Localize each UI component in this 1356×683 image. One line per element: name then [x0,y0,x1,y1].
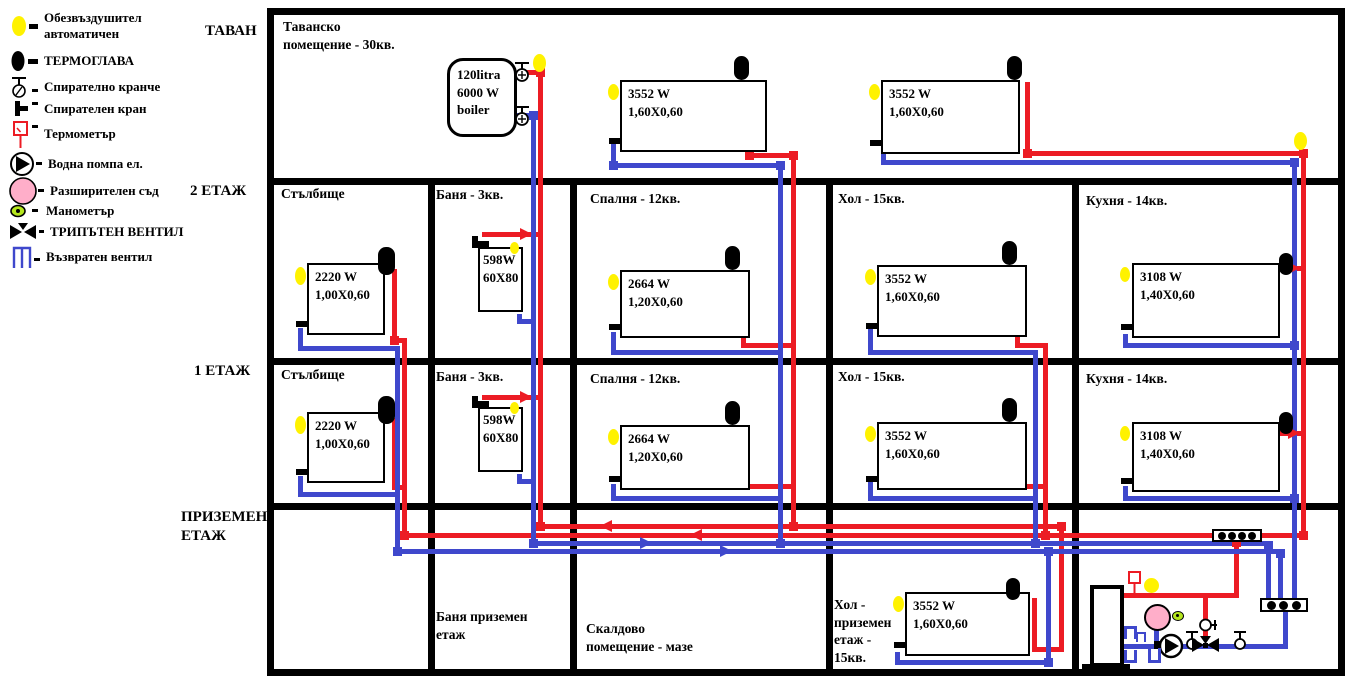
pipe-joint [609,161,618,170]
return-pipe [895,660,1051,665]
legend-item-thermo-head: ТЕРМОГЛАВА [8,48,134,74]
shutoff-valve-icon [296,321,309,327]
radiator-power: 2664 W [628,275,742,293]
return-pipe [1266,543,1271,600]
room-label-f1-kitchen: Кухня - 14кв. [1086,370,1167,388]
manifold-port [1279,601,1288,610]
manifold-port [1238,532,1246,540]
thermometer-icon [1126,570,1144,596]
return-pipe [298,346,400,351]
flow-arrow [720,545,732,557]
supply-riser-hall [1043,343,1048,538]
radiator-power: 3108 W [1140,268,1272,286]
floor-label-attic: ТАВАН [205,22,257,41]
wall-segment [428,178,435,676]
supply-pipe [1025,82,1030,154]
air-vent-icon [510,242,519,254]
shutoff-valve-icon [472,236,478,248]
pipe-joint [1044,658,1053,667]
pipe-joint [789,151,798,160]
return-pipe [1046,551,1051,665]
air-vent-icon [295,267,306,285]
shutoff-valve-icon [1121,324,1134,330]
return-pipe [1123,343,1297,348]
flow-arrow [640,537,652,549]
room-label-f2-bedroom: Спалня - 12кв. [590,190,680,208]
radiator-f1-stair: 2220 W1,00X0,60 [307,412,385,483]
return-pipe [611,496,783,501]
pipe-joint [789,522,798,531]
legend-item-shutoff-valve: Спирателен кран [8,98,146,120]
radiator-size: 1,00X0,60 [315,286,377,304]
shutoff-valve-icon [609,476,622,482]
water-pump-icon [8,150,42,178]
shutoff-valve-icon [472,396,478,408]
wall-segment [1072,178,1079,676]
supply-manifold [1212,529,1262,542]
radiator-power: 3552 W [913,597,1022,615]
pipe-joint [400,531,409,540]
room-label-attic: Таванско помещение - 30кв. [283,18,395,53]
legend-item-three-way-valve: ТРИПЪТЕН ВЕНТИЛ [8,222,183,242]
shutoff-valve-icon [609,138,622,144]
return-pipe [881,160,1297,165]
radiator-f2-kitchen: 3108 W1,40X0,60 [1132,263,1280,338]
legend-label: Термометър [44,126,116,142]
legend-label: Обезвъздушител автоматичен [44,10,142,41]
return-pipe [517,479,536,484]
radiator-size: 1,60X0,60 [885,288,1019,306]
room-label-f2-hall: Хол - 15кв. [838,190,905,208]
return-pipe [1123,496,1297,501]
supply-riser-stair [402,338,407,538]
return-pipe [1278,551,1283,600]
shutoff-tap-icon [1194,616,1218,634]
legend-label: Възвратен вентил [46,249,152,265]
radiator-attic-1: 3552 W1,60X0,60 [620,80,767,152]
shutoff-valve-icon [866,323,879,329]
pipe-joint [393,547,402,556]
manifold-port [1228,532,1236,540]
legend-label: ТРИПЪТЕН ВЕНТИЛ [50,224,183,240]
supply-pipe [1025,151,1306,156]
supply-pipe [1032,598,1037,650]
thermo-head-icon [725,401,740,425]
legend-item-water-pump: Водна помпа ел. [8,150,143,178]
radiator-size: 1,60X0,60 [628,103,759,121]
air-vent-icon [295,416,306,434]
air-vent-icon [608,274,619,290]
air-vent-icon [893,596,904,612]
pipe-joint [1264,541,1273,550]
air-vent-icon [865,426,876,442]
pipe-joint [1299,149,1308,158]
air-vent-icon [1120,267,1130,282]
air-vent-icon [1144,578,1159,593]
legend-item-manometer: Манометър [8,202,114,220]
return-pipe [517,319,536,324]
three-way-valve-icon [1191,636,1220,654]
return-pipe [611,350,783,355]
pipe-joint [1290,341,1299,350]
shutoff-valve-icon [894,642,907,648]
radiator-power: 3552 W [889,85,1012,103]
flow-arrow [600,520,612,532]
return-pipe [868,329,873,352]
shutoff-tap-icon [511,59,533,87]
return-main-lower [395,549,1283,554]
manometer-icon [8,202,40,220]
radiator-f2-bedroom: 2664 W1,20X0,60 [620,270,750,338]
thermo-head-icon [8,48,38,74]
radiator-f2-hall: 3552 W1,60X0,60 [877,265,1027,337]
legend-label: Водна помпа ел. [48,156,143,172]
shutoff-tap-icon [1232,629,1248,651]
thermo-head-icon [378,396,395,424]
legend-item-shutoff-tap: Спирателно кранче [8,74,160,100]
thermo-head-icon [1279,253,1293,275]
manifold-port [1267,601,1276,610]
legend-item-air-vent: Обезвъздушител автоматичен [8,10,142,41]
room-label-f1-stair: Стълбище [281,366,345,384]
check-valve-icon [8,244,40,270]
thermo-head-icon [378,247,395,275]
radiator-size: 60X80 [483,429,518,447]
pipe-joint [1276,549,1285,558]
pipe-joint [776,161,785,170]
thermo-head-icon [1002,398,1017,422]
thermo-head-icon [1007,56,1022,80]
radiator-f2-bath: 598W60X80 [478,247,523,312]
manifold-port [1218,532,1226,540]
return-manifold [1260,598,1308,612]
pipe-joint [1023,149,1032,158]
return-pipe [868,350,1038,355]
check-valve-icon [1124,650,1137,663]
room-label-f1-bedroom: Спалня - 12кв. [590,370,680,388]
wall-segment [1338,8,1345,676]
pipe-joint [1044,547,1053,556]
radiator-power: 2220 W [315,417,377,435]
pipe-joint [529,539,538,548]
radiator-f1-bath: 598W60X80 [478,407,523,472]
shutoff-valve-icon [1121,478,1134,484]
flow-arrow [690,529,702,541]
shutoff-valve-icon [8,98,38,120]
pipe-joint [745,151,754,160]
air-vent-icon [608,429,619,445]
thermo-head-icon [1002,241,1017,265]
wall-segment [826,178,833,676]
radiator-power: 3108 W [1140,427,1272,445]
return-riser-stair [395,346,400,554]
air-vent-icon [1294,132,1307,150]
manifold-port [1292,601,1301,610]
check-valve-icon [1136,632,1146,642]
legend-item-thermometer: Термометър [8,118,116,150]
legend-label: Спирателен кран [44,101,146,117]
thermo-head-icon [1006,578,1020,600]
radiator-size: 1,60X0,60 [885,445,1019,463]
radiator-size: 1,20X0,60 [628,448,742,466]
shutoff-valve-icon [609,324,622,330]
air-vent-icon [533,54,546,72]
pipe-joint [536,522,545,531]
room-label-f2-stair: Стълбище [281,185,345,203]
pipe-joint [1057,522,1066,531]
manifold-port [1248,532,1256,540]
wall-segment [267,8,274,676]
air-vent-icon [869,84,880,100]
heating-system-diagram: { "colors": { "supply": "#ec1c24", "retu… [0,0,1356,683]
radiator-f1-hall: 3552 W1,60X0,60 [877,422,1027,490]
supply-main-upper [538,524,1065,529]
radiator-size: 1,00X0,60 [315,435,377,453]
return-pipe [298,492,400,497]
flow-arrow [520,228,532,240]
pipe-joint [1031,539,1040,548]
boiler-tank: 120litra 6000 W boiler [447,58,517,137]
supply-main-lower [402,533,1212,538]
radiator-power: 3552 W [628,85,759,103]
floor-label-ground: ПРИЗЕМЕН ЕТАЖ [181,508,267,546]
legend-item-check-valve: Възвратен вентил [8,244,152,270]
shutoff-valve-icon [870,140,883,146]
thermo-head-icon [725,246,740,270]
ground-boiler-base [1082,664,1130,672]
room-label-g-hall: Хол - приземен етаж - 15кв. [834,596,891,666]
thermo-head-icon [1279,412,1293,434]
air-vent-icon [1120,426,1130,441]
radiator-size: 1,40X0,60 [1140,286,1272,304]
air-vent-icon [865,269,876,285]
return-pipe [1283,610,1288,649]
room-label-f1-hall: Хол - 15кв. [838,368,905,386]
flow-arrow [520,391,532,403]
air-vent-icon [510,402,519,414]
pipe-joint [1299,531,1308,540]
radiator-size: 1,60X0,60 [889,103,1012,121]
legend-label: Спирателно кранче [44,79,160,95]
radiator-size: 1,40X0,60 [1140,445,1272,463]
return-riser-hall [1033,350,1038,548]
supply-pipe [392,269,397,340]
room-label-f1-bath: Баня - 3кв. [436,368,503,386]
pipe-joint [1290,494,1299,503]
air-vent-icon [8,12,38,40]
thermo-head-icon [734,56,749,80]
radiator-attic-2: 3552 W1,60X0,60 [881,80,1020,154]
shutoff-tap-icon [511,103,533,131]
radiator-f1-kitchen: 3108 W1,40X0,60 [1132,422,1280,492]
room-label-g-bath: Баня приземен етаж [436,608,528,643]
check-valve-icon [1148,648,1161,663]
supply-riser-bedroom [791,153,796,531]
room-label-f2-kitchen: Кухня - 14кв. [1086,192,1167,210]
room-label-g-storage: Скалдово помещение - мазе [586,620,693,655]
supply-riser-bath [538,70,543,528]
wall-segment [267,8,1345,15]
radiator-size: 1,60X0,60 [913,615,1022,633]
thermometer-icon [8,118,38,150]
radiator-size: 60X80 [483,269,518,287]
radiator-size: 1,20X0,60 [628,293,742,311]
floor-label-second: 2 ЕТАЖ [190,182,246,201]
return-pipe [298,328,303,348]
radiator-power: 3552 W [885,270,1019,288]
pipe-joint [1290,158,1299,167]
three-way-valve-icon [8,222,44,242]
pipe-joint [1041,531,1050,540]
legend-label: Разширителен съд [50,183,159,199]
ground-boiler [1090,585,1124,667]
radiator-f2-stair: 2220 W1,00X0,60 [307,263,385,335]
shutoff-valve-icon [296,469,309,475]
radiator-power: 2664 W [628,430,742,448]
pipe-joint [390,336,399,345]
floor-label-first: 1 ЕТАЖ [194,362,250,381]
pipe-joint [776,539,785,548]
room-label-f2-bath: Баня - 3кв. [436,186,503,204]
supply-pipe [741,343,796,348]
radiator-power: 3552 W [885,427,1019,445]
legend-label: ТЕРМОГЛАВА [44,53,134,69]
shutoff-tap-icon [8,74,38,100]
return-pipe [611,163,783,168]
radiator-g-hall: 3552 W1,60X0,60 [905,592,1030,656]
supply-riser-kitchen [1301,151,1306,538]
manometer-icon [1172,611,1184,621]
return-pipe [868,496,1038,501]
radiator-power: 2220 W [315,268,377,286]
radiator-f1-bedroom: 2664 W1,20X0,60 [620,425,750,490]
wall-segment [570,178,577,676]
return-riser-kitchen [1292,160,1297,600]
return-pipe [611,332,616,352]
shutoff-valve-icon [866,476,879,482]
expansion-vessel [1144,604,1171,631]
air-vent-icon [608,84,619,100]
legend-label: Манометър [46,203,114,219]
